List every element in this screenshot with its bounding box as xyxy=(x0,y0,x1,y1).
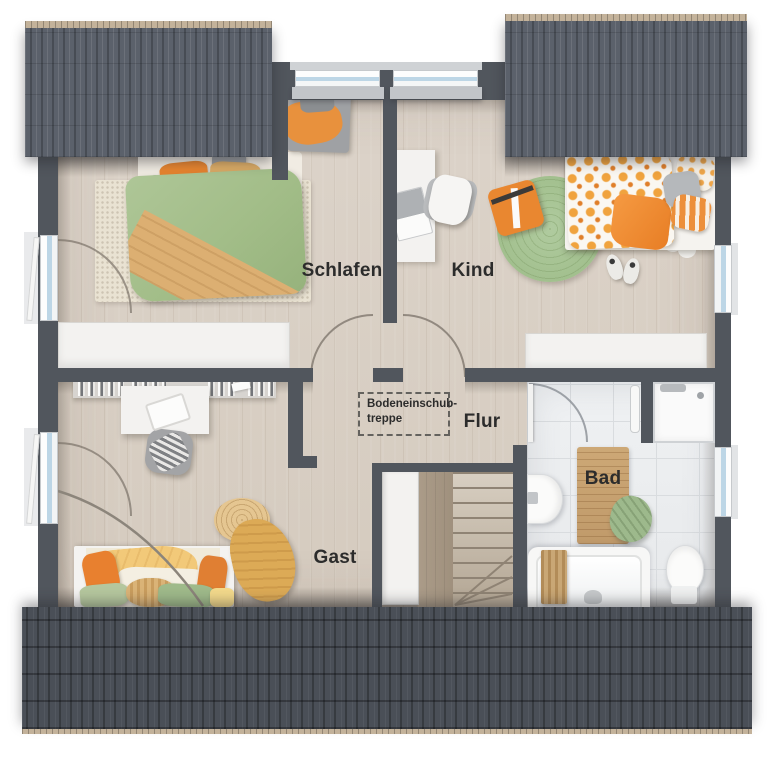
toilet-tank xyxy=(671,586,697,604)
wall-nook-left xyxy=(272,98,288,180)
bad-door-leaf xyxy=(528,384,533,442)
staircase-treads xyxy=(453,472,513,607)
wall-divider-schlafen-kind xyxy=(383,98,397,323)
shower-drain xyxy=(697,392,704,399)
label-gast: Gast xyxy=(313,547,356,569)
wardrobe-schlafen xyxy=(58,322,290,370)
wall-top-ledge xyxy=(290,62,482,70)
stair-closet-door xyxy=(382,470,419,605)
gast-pillow-yellow xyxy=(210,588,234,607)
roof-bottom-edge xyxy=(22,729,752,734)
sink-faucet xyxy=(527,492,538,504)
wall-bad-stub xyxy=(641,368,653,443)
label-schlafen: Schlafen xyxy=(302,260,383,282)
label-bad: Bad xyxy=(585,468,622,490)
roof-ridge-top-right xyxy=(505,14,747,21)
wardrobe-kind xyxy=(525,333,707,371)
label-kind: Kind xyxy=(451,260,494,282)
roof-ridge-top-left xyxy=(25,21,272,28)
gast-pillow-green-2 xyxy=(157,583,214,609)
window-left-1 xyxy=(40,235,58,321)
wall-middle-left xyxy=(58,368,313,382)
window-left-2 xyxy=(40,432,58,524)
attic-stairs-label-line2: treppe xyxy=(367,412,448,427)
roof-top-left xyxy=(25,27,272,157)
window-sill-top-right xyxy=(390,87,482,99)
bath-caddy-wood xyxy=(541,550,567,604)
stair-landing xyxy=(417,472,453,607)
floor-plan: Schlafen Kind Flur Gast Bad Bodeneinschu… xyxy=(0,0,775,763)
double-bed-duvet-green xyxy=(125,167,307,302)
window-sill-top-left xyxy=(292,87,384,99)
wall-middle-center xyxy=(373,368,403,382)
roof-top-right xyxy=(505,20,747,157)
attic-stairs-label-line1: Bodeneinschub- xyxy=(367,397,448,412)
books-cluster-4 xyxy=(248,380,274,396)
wall-gast-flur xyxy=(288,368,303,468)
wall-stair-top xyxy=(372,463,527,472)
window-top-left xyxy=(295,70,380,87)
wall-stair-left xyxy=(372,463,382,607)
window-right-bad-outer xyxy=(731,445,738,519)
wall-gast-flur-stub xyxy=(288,456,317,468)
label-flur: Flur xyxy=(464,411,501,433)
wall-middle-right xyxy=(465,368,730,382)
duvet-tan-fold xyxy=(125,210,307,303)
hand-shower xyxy=(584,590,602,604)
window-right-kind-outer xyxy=(731,243,738,315)
window-right-kind xyxy=(714,245,732,313)
books-cluster-1 xyxy=(78,380,124,396)
wall-flur-bad xyxy=(513,445,527,607)
roof-bottom xyxy=(22,607,752,729)
wall-left xyxy=(38,98,58,607)
towel-rail xyxy=(630,385,640,433)
attic-stairs-box: Bodeneinschub- treppe xyxy=(358,392,450,436)
window-right-bad xyxy=(714,447,732,517)
shower-fixture xyxy=(660,384,686,392)
window-top-right xyxy=(393,70,478,87)
kid-blanket-orange xyxy=(609,193,673,252)
